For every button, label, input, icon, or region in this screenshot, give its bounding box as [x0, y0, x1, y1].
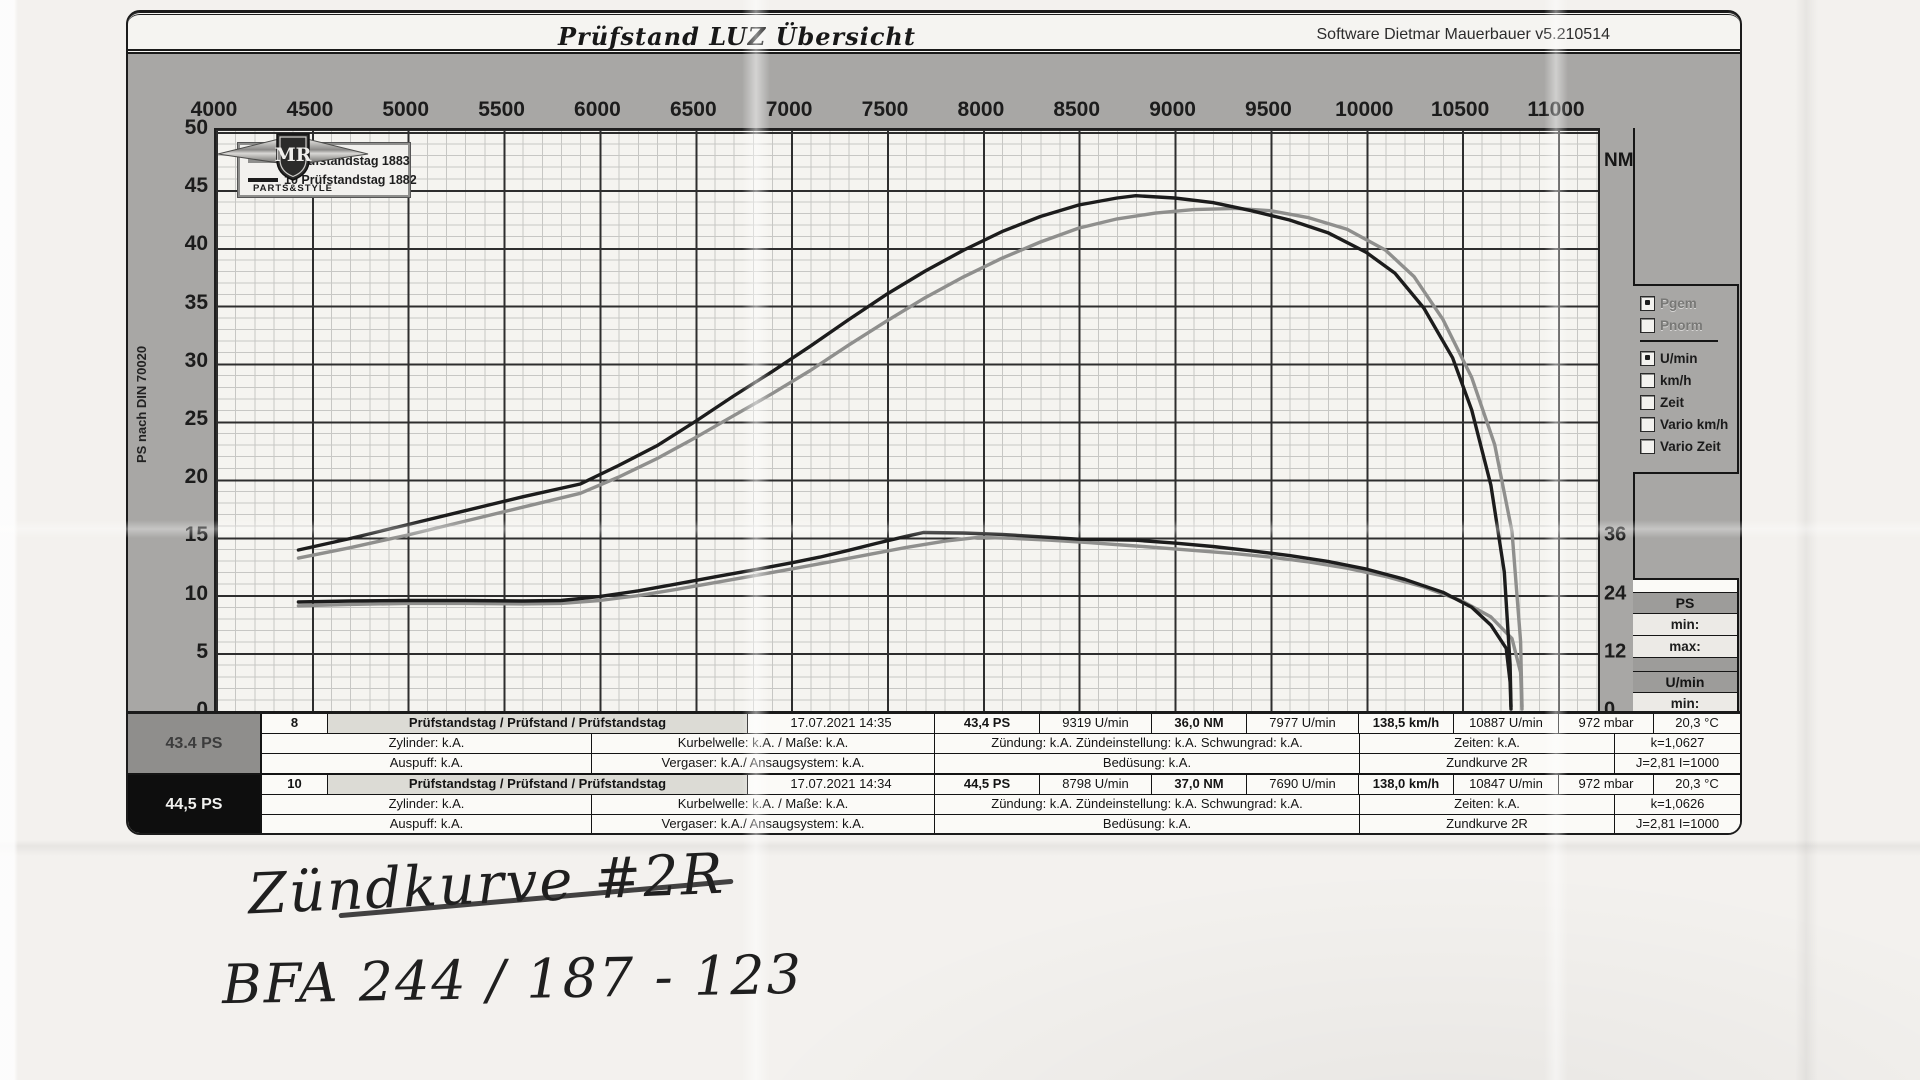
checkbox-icon — [1640, 296, 1655, 311]
test-datetime: 17.07.2021 14:35 — [748, 714, 935, 733]
y-tick-label: 5 — [196, 640, 208, 664]
handwritten-note-line1: Zündkurve #2R — [247, 842, 726, 928]
table-row-header: 8Prüfstandstag / Prüfstand / Prüfstandst… — [262, 714, 1740, 734]
carburetor-info: Vergaser: k.A./ Ansaugsystem: k.A. — [592, 815, 935, 833]
x-tick-label: 4500 — [287, 98, 334, 122]
stats-header-umin: U/min — [1633, 672, 1737, 693]
nm-tick-label: 24 — [1604, 582, 1626, 605]
x-tick-label: 7000 — [766, 98, 813, 122]
test-description: Prüfstandstag / Prüfstand / Prüfstandsta… — [328, 714, 748, 733]
y-axis-title: PS nach DIN 70020 — [134, 254, 160, 554]
stats-header-ps: PS — [1633, 593, 1737, 614]
table-row-header: 10Prüfstandstag / Prüfstand / Prüfstands… — [262, 775, 1740, 795]
checkbox-u-min: U/min — [1640, 347, 1737, 369]
y-tick-label: 10 — [185, 582, 208, 606]
checkbox-zeit: Zeit — [1640, 391, 1737, 413]
ignition-info: Zündung: k.A. Zündeinstellung: k.A. Schw… — [935, 734, 1360, 753]
checkbox-pgem: Pgem — [1640, 292, 1737, 314]
timing-info: Zeiten: k.A. — [1360, 795, 1615, 814]
jetting-info: Bedüsung: k.A. — [935, 815, 1360, 833]
peak-torque-rpm: 7690 U/min — [1247, 775, 1359, 794]
table-block: 43.4 PS8Prüfstandstag / Prüfstand / Prüf… — [128, 714, 1740, 775]
results-table: 43.4 PS8Prüfstandstag / Prüfstand / Prüf… — [128, 714, 1740, 833]
table-row-intake: Auspuff: k.A.Vergaser: k.A./ Ansaugsyste… — [262, 815, 1740, 833]
logo-right-wing — [307, 139, 368, 163]
air-temperature: 20,3 °C — [1654, 775, 1740, 794]
peak-torque: 37,0 NM — [1152, 775, 1247, 794]
jetting-info: Bedüsung: k.A. — [935, 754, 1360, 773]
checkbox-label: U/min — [1660, 351, 1698, 366]
peak-torque: 36,0 NM — [1152, 714, 1247, 733]
checkbox-km-h: km/h — [1640, 369, 1737, 391]
checkbox-icon — [1640, 417, 1655, 432]
mr-parts-style-logo: MR PARTS&STYLE — [216, 130, 370, 194]
x-axis-labels-top: 4000450050005500600065007000750080008500… — [214, 98, 1596, 124]
stats-gap — [1633, 658, 1737, 672]
x-tick-label: 5000 — [382, 98, 429, 122]
table-grid: 8Prüfstandstag / Prüfstand / Prüfstandst… — [262, 714, 1740, 773]
checkbox-checked-dot — [1645, 355, 1650, 360]
checkbox-icon — [1640, 395, 1655, 410]
y-tick-label: 35 — [185, 291, 208, 315]
software-version: Software Dietmar Mauerbauer v5.210514 — [1317, 26, 1611, 44]
channel-checkbox-panel: PgemPnormU/minkm/hZeitVario km/hVario Ze… — [1633, 284, 1739, 474]
test-number: 10 — [262, 775, 328, 794]
y-tick-label: 20 — [185, 465, 208, 489]
table-peak-ps-label: 43.4 PS — [128, 714, 262, 773]
y-axis-labels-left: 50454035302520151050 — [158, 128, 208, 710]
y-tick-label: 30 — [185, 349, 208, 373]
exhaust-info: Auspuff: k.A. — [262, 815, 592, 833]
table-grid: 10Prüfstandstag / Prüfstand / Prüfstands… — [262, 775, 1740, 833]
checkbox-label: km/h — [1660, 373, 1692, 388]
x-tick-label: 8500 — [1053, 98, 1100, 122]
stats-row: max: — [1633, 636, 1737, 658]
y-tick-label: 45 — [185, 174, 208, 198]
x-tick-label: 11000 — [1527, 98, 1584, 122]
page-title: Prüfstand LUZ Übersicht — [558, 22, 916, 51]
checkbox-icon — [1640, 351, 1655, 366]
x-tick-label: 10000 — [1335, 98, 1393, 122]
peak-power-rpm: 8798 U/min — [1040, 775, 1152, 794]
curves-svg — [216, 130, 1598, 712]
table-peak-ps-label: 44,5 PS — [128, 775, 262, 833]
cylinder-info: Zylinder: k.A. — [262, 795, 592, 814]
checkbox-label: Zeit — [1660, 395, 1684, 410]
chart-panel: 4000450050005500600065007000750080008500… — [128, 54, 1740, 711]
x-tick-label: 8000 — [958, 98, 1005, 122]
checkbox-label: Pgem — [1660, 296, 1697, 311]
test-description: Prüfstandstag / Prüfstand / Prüfstandsta… — [328, 775, 748, 794]
ignition-curve: Zundkurve 2R — [1360, 754, 1615, 773]
checkbox-checked-dot — [1645, 300, 1650, 305]
crankshaft-info: Kurbelwelle: k.A. / Maße: k.A. — [592, 734, 935, 753]
curve-power-run-10 — [298, 196, 1511, 707]
peak-power: 44,5 PS — [935, 775, 1040, 794]
checkbox-vario-km-h: Vario km/h — [1640, 413, 1737, 435]
exhaust-info: Auspuff: k.A. — [262, 754, 592, 773]
curve-power-run-8 — [298, 208, 1522, 706]
y-tick-label: 40 — [185, 232, 208, 256]
k-factor: k=1,0627 — [1615, 734, 1740, 753]
plot-area: 8 Prüfstandstag 188310 Prüfstandstag 188… — [214, 128, 1600, 714]
table-row-intake: Auspuff: k.A.Vergaser: k.A./ Ansaugsyste… — [262, 754, 1740, 773]
max-rpm: 10887 U/min — [1454, 714, 1559, 733]
test-number: 8 — [262, 714, 328, 733]
x-tick-label: 7500 — [862, 98, 909, 122]
timing-info: Zeiten: k.A. — [1360, 734, 1615, 753]
table-row-engine: Zylinder: k.A.Kurbelwelle: k.A. / Maße: … — [262, 795, 1740, 815]
table-row-engine: Zylinder: k.A.Kurbelwelle: k.A. / Maße: … — [262, 734, 1740, 754]
checkbox-label: Vario Zeit — [1660, 439, 1721, 454]
checkbox-icon — [1640, 439, 1655, 454]
logo-left-wing — [218, 139, 279, 163]
checkbox-icon — [1640, 373, 1655, 388]
crankshaft-info: Kurbelwelle: k.A. / Maße: k.A. — [592, 795, 935, 814]
air-pressure: 972 mbar — [1559, 714, 1654, 733]
peak-torque-rpm: 7977 U/min — [1247, 714, 1359, 733]
checkbox-pnorm: Pnorm — [1640, 314, 1737, 336]
title-bar: Prüfstand LUZ Übersicht Software Dietmar… — [128, 12, 1740, 54]
x-tick-label: 6000 — [574, 98, 621, 122]
top-speed: 138,0 km/h — [1359, 775, 1454, 794]
checkbox-icon — [1640, 318, 1655, 333]
nm-tick-label: 36 — [1604, 524, 1626, 547]
peak-power-rpm: 9319 U/min — [1040, 714, 1152, 733]
x-tick-label: 5500 — [478, 98, 525, 122]
carburetor-info: Vergaser: k.A./ Ansaugsystem: k.A. — [592, 754, 935, 773]
table-block: 44,5 PS10Prüfstandstag / Prüfstand / Prü… — [128, 775, 1740, 833]
air-pressure: 972 mbar — [1559, 775, 1654, 794]
y-tick-label: 25 — [185, 407, 208, 431]
test-datetime: 17.07.2021 14:34 — [748, 775, 935, 794]
ignition-info: Zündung: k.A. Zündeinstellung: k.A. Schw… — [935, 795, 1360, 814]
top-speed: 138,5 km/h — [1359, 714, 1454, 733]
x-tick-label: 10500 — [1431, 98, 1489, 122]
dyno-sheet: Prüfstand LUZ Übersicht Software Dietmar… — [126, 10, 1742, 835]
max-rpm: 10847 U/min — [1454, 775, 1559, 794]
k-factor: k=1,0626 — [1615, 795, 1740, 814]
y-tick-label: 15 — [185, 523, 208, 547]
stats-spacer — [1633, 580, 1737, 593]
stats-row: min: — [1633, 614, 1737, 636]
j-factor: J=2,81 I=1000 — [1615, 815, 1740, 833]
peak-power: 43,4 PS — [935, 714, 1040, 733]
logo-monogram: MR — [275, 144, 312, 166]
y-tick-label: 50 — [185, 116, 208, 140]
j-factor: J=2,81 I=1000 — [1615, 754, 1740, 773]
checkbox-label: Vario km/h — [1660, 417, 1728, 432]
ignition-curve: Zundkurve 2R — [1360, 815, 1615, 833]
handwritten-note-line2: BFA 244 / 187 - 123 — [221, 943, 803, 1016]
curve-torque-run-10 — [298, 533, 1511, 710]
nm-tick-label: 12 — [1604, 640, 1626, 663]
air-temperature: 20,3 °C — [1654, 714, 1740, 733]
x-tick-label: 6500 — [670, 98, 717, 122]
checkbox-group-divider — [1640, 340, 1718, 342]
logo-subtitle: PARTS&STYLE — [253, 183, 333, 194]
x-tick-label: 9500 — [1245, 98, 1292, 122]
x-tick-label: 9000 — [1149, 98, 1196, 122]
checkbox-vario-zeit: Vario Zeit — [1640, 435, 1737, 457]
checkbox-label: Pnorm — [1660, 318, 1703, 333]
cylinder-info: Zylinder: k.A. — [262, 734, 592, 753]
